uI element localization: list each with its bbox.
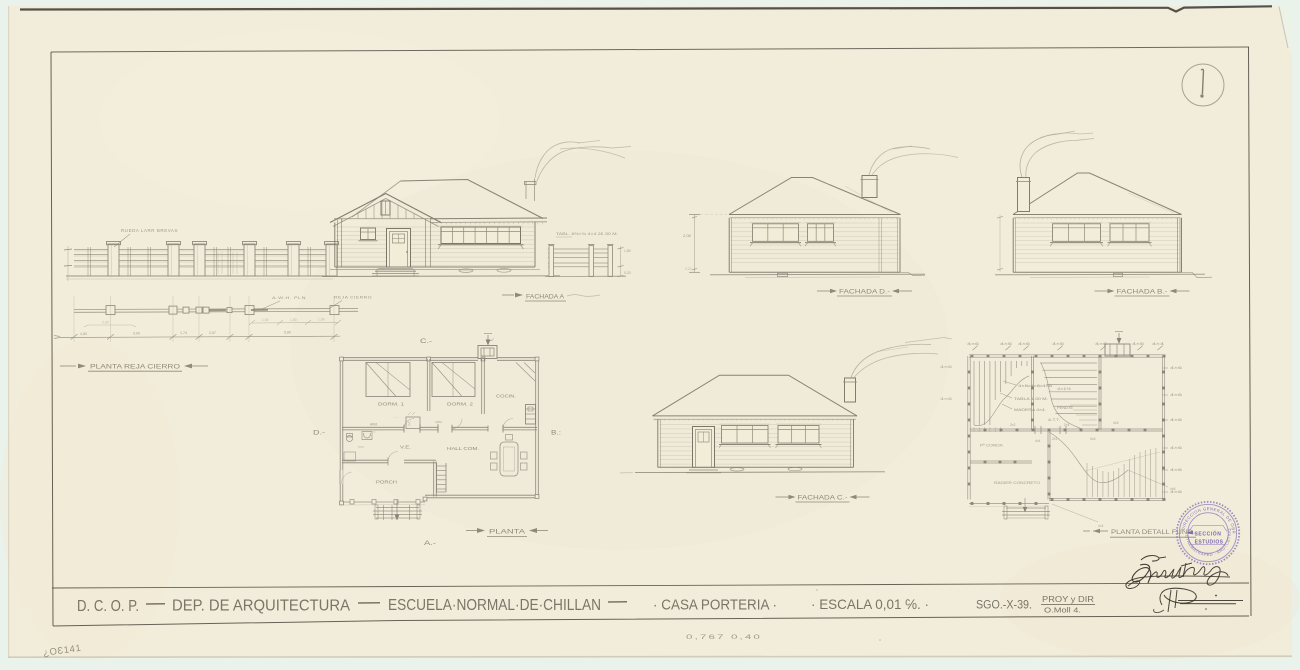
svg-text:COCIN.: COCIN. xyxy=(496,394,516,399)
svg-text:· CASA PORTERIA ·: · CASA PORTERIA · xyxy=(653,597,777,614)
svg-text:Pº CONCR.: Pº CONCR. xyxy=(980,444,1004,448)
svg-text:A.T.T.: A.T.T. xyxy=(1048,418,1060,422)
svg-text:4×6: 4×6 xyxy=(967,342,979,346)
svg-text:TABL. 6½×¾ 4×4 2£.30 M.: TABL. 6½×¾ 4×4 2£.30 M. xyxy=(556,232,618,236)
svg-text:TABLA 1.00 M.: TABLA 1.00 M. xyxy=(1014,397,1048,401)
svg-text:FACHADA C.-: FACHADA C.- xyxy=(798,495,848,502)
svg-text:· ESCALA 0,01 ℅. ·: · ESCALA 0,01 ℅. · xyxy=(811,596,929,612)
svg-text:DORM. 2: DORM. 2 xyxy=(447,402,474,407)
svg-text:4×6: 4×6 xyxy=(1170,366,1182,370)
svg-text:4×6: 4×6 xyxy=(1052,342,1064,346)
svg-text:4×6: 4×6 xyxy=(1170,418,1182,422)
svg-text:C.-: C.- xyxy=(420,338,432,345)
svg-text:4×6: 4×6 xyxy=(940,397,952,401)
svg-text:PENDTE: PENDTE xyxy=(1057,406,1074,410)
svg-text:0,20: 0,20 xyxy=(624,271,631,275)
svg-text:5,00: 5,00 xyxy=(133,331,140,335)
svg-text:4×6•4×6•4×8: 4×6•4×6•4×8 xyxy=(1018,384,1052,388)
svg-text:DEP. DE ARQUITECTURA: DEP. DE ARQUITECTURA xyxy=(172,598,351,615)
svg-text:4×6: 4×6 xyxy=(1170,468,1182,472)
svg-text:FACHADA B.-: FACHADA B.- xyxy=(1117,289,1168,296)
svg-text:V.E.: V.E. xyxy=(400,445,411,450)
svg-text:4×6: 4×6 xyxy=(1170,393,1182,397)
svg-text:1,80: 1,80 xyxy=(262,318,269,322)
svg-text:2,87: 2,87 xyxy=(209,331,216,335)
svg-text:4×6: 4×6 xyxy=(1090,437,1096,441)
svg-text:ESTUDIOS: ESTUDIOS xyxy=(1195,540,1224,546)
svg-text:4×4: 4×4 xyxy=(1035,439,1041,443)
svg-text:FACHADA D.-: FACHADA D.- xyxy=(839,289,890,296)
svg-text:D.-: D.- xyxy=(313,430,325,437)
svg-text:5,80: 5,80 xyxy=(284,331,291,335)
svg-text:1,74: 1,74 xyxy=(180,331,187,335)
svg-text:4×6: 4×6 xyxy=(940,365,952,369)
svg-text:A.-: A.- xyxy=(424,540,436,547)
svg-text:○: ○ xyxy=(370,437,372,441)
svg-text:4×4: 4×4 xyxy=(1152,342,1164,346)
svg-text:4,80: 4,80 xyxy=(80,332,87,336)
svg-text:PORCH: PORCH xyxy=(376,480,397,485)
svg-text:∷∷: ∷∷ xyxy=(372,430,376,434)
svg-text:╳: ╳ xyxy=(407,421,411,426)
svg-text:ESCUELA·NORMAL·DE·CHILLAN: ESCUELA·NORMAL·DE·CHILLAN xyxy=(388,597,601,614)
svg-text:2×4: 2×4 xyxy=(1064,423,1070,427)
svg-text:4×6: 4×6 xyxy=(1113,421,1119,425)
svg-text:4×6: 4×6 xyxy=(1095,342,1107,346)
svg-text:×××: ××× xyxy=(358,445,364,449)
svg-text:4×6: 4×6 xyxy=(1000,342,1012,346)
svg-text:···: ··· xyxy=(394,415,398,420)
svg-text:HALL COM.: HALL COM. xyxy=(447,446,479,451)
svg-text:4×6: 4×6 xyxy=(1132,342,1144,346)
svg-text:RADIER CONCRETO: RADIER CONCRETO xyxy=(994,481,1040,485)
svg-text:ARM.: ARM. xyxy=(370,423,378,427)
svg-text:O.Moll 4.: O.Moll 4. xyxy=(1044,606,1081,615)
svg-text:4×6: 4×6 xyxy=(1170,487,1176,491)
svg-text:D. C. O. P.: D. C. O. P. xyxy=(77,598,139,615)
svg-text:2×2: 2×2 xyxy=(1052,437,1058,441)
svg-text:RUEDA LARR BREVAS: RUEDA LARR BREVAS xyxy=(121,228,178,233)
svg-text:REJA CIERRO: REJA CIERRO xyxy=(334,295,372,300)
svg-text:PROY y DIR: PROY y DIR xyxy=(1042,595,1094,604)
svg-text:4×6: 4×6 xyxy=(1170,446,1182,450)
svg-text:PLANTA: PLANTA xyxy=(489,529,526,536)
svg-text:2,08: 2,08 xyxy=(683,233,692,238)
svg-text:0,20: 0,20 xyxy=(685,267,692,271)
svg-text:A.W.H. PLN: A.W.H. PLN xyxy=(272,295,306,300)
svg-text:4×4: 4×4 xyxy=(1098,524,1104,528)
svg-text:SECCIÓN: SECCIÓN xyxy=(1195,530,1222,538)
svg-text:FACHADA A: FACHADA A xyxy=(526,294,565,301)
svg-text:1,80: 1,80 xyxy=(318,318,325,322)
svg-text:1,80: 1,80 xyxy=(290,318,297,322)
svg-text:SGO.-X-39.: SGO.-X-39. xyxy=(976,600,1032,612)
svg-text:PLANTA REJA CIERRO: PLANTA REJA CIERRO xyxy=(90,364,180,371)
svg-text:↓: ↓ xyxy=(492,336,494,341)
svg-text:MADERA 4×4.: MADERA 4×4. xyxy=(1014,408,1046,412)
svg-text:ARM.: ARM. xyxy=(435,420,443,424)
svg-text:0,767 0,40: 0,767 0,40 xyxy=(686,634,762,641)
svg-text:B.:: B.: xyxy=(551,430,561,437)
svg-text:2,00: 2,00 xyxy=(102,321,109,325)
svg-text:1,80: 1,80 xyxy=(624,249,631,253)
svg-text:2×2: 2×2 xyxy=(1010,423,1016,427)
svg-text:4×6: 4×6 xyxy=(1018,342,1030,346)
svg-text:4×1½: 4×1½ xyxy=(1057,387,1071,391)
svg-text:DORM. 1: DORM. 1 xyxy=(378,402,405,407)
